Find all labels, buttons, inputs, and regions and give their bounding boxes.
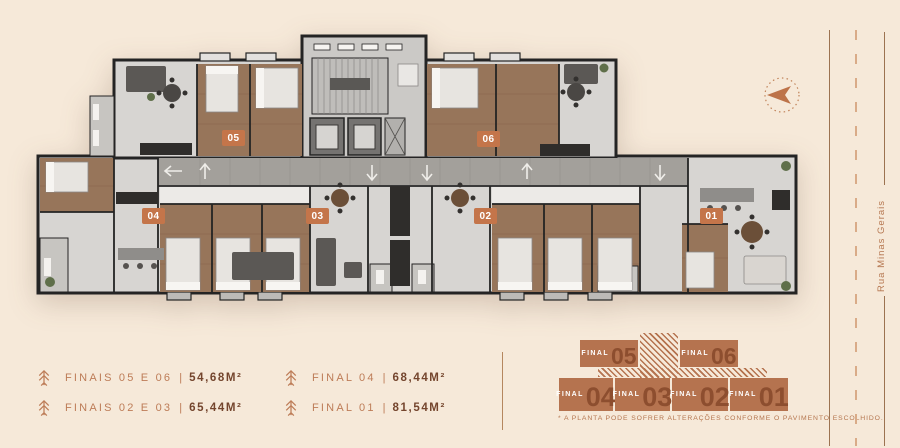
upward-arrows-icon xyxy=(36,368,52,387)
legend-area: 65,44M² xyxy=(189,402,242,414)
keymap-final-word: FINAL xyxy=(556,391,584,398)
keymap-final-word: FINAL xyxy=(581,350,609,357)
floor-plan-page: 05 06 04 03 02 01 FINAIS 05 E 06|54,68M²… xyxy=(0,0,900,448)
street-edge-line xyxy=(884,32,885,185)
keymap-unit-number: 03 xyxy=(642,385,672,409)
keymap-block-03: FINAL 03 xyxy=(615,378,670,411)
keymap-disclaimer: * A PLANTA PODE SOFRER ALTERAÇÕES CONFOR… xyxy=(558,415,838,422)
legend-divider xyxy=(502,352,503,430)
keymap-unit-number: 06 xyxy=(711,346,737,367)
legend-item-finais-05-06: FINAIS 05 E 06|54,68M² xyxy=(36,367,242,387)
legend-item-final-04: FINAL 04|68,44M² xyxy=(283,367,446,387)
street-center-dashed-line xyxy=(855,30,857,446)
keymap-corridor-hatch xyxy=(598,368,767,377)
keymap-final-word: FINAL xyxy=(729,391,757,398)
street-edge-line xyxy=(884,296,885,446)
keymap-final-word: FINAL xyxy=(613,391,641,398)
keymap-block-01: FINAL 01 xyxy=(730,378,788,411)
keymap-unit-number: 04 xyxy=(586,385,616,409)
legend-separator: | xyxy=(383,372,386,384)
legend-item-finais-02-03: FINAIS 02 E 03|65,44M² xyxy=(36,397,242,417)
upward-arrows-icon xyxy=(283,398,299,417)
unit-label-05: 05 xyxy=(222,130,245,146)
legend-label: FINAIS 05 E 06 xyxy=(65,372,172,384)
street-name-label: Rua Minas Gerais xyxy=(876,196,887,292)
keymap-final-word: FINAL xyxy=(670,391,698,398)
legend-separator: | xyxy=(179,372,182,384)
unit-label-03: 03 xyxy=(306,208,329,224)
keymap-block-04: FINAL 04 xyxy=(559,378,613,411)
legend-area: 54,68M² xyxy=(189,372,242,384)
legend-label: FINAL 01 xyxy=(312,402,376,414)
unit-label-04: 04 xyxy=(142,208,165,224)
legend-item-final-01: FINAL 01|81,54M² xyxy=(283,397,446,417)
keymap-unit-number: 01 xyxy=(759,385,789,409)
legend-label: FINAL 04 xyxy=(312,372,376,384)
upward-arrows-icon xyxy=(36,398,52,417)
legend-area: 81,54M² xyxy=(393,402,446,414)
upward-arrows-icon xyxy=(283,368,299,387)
legend-separator: | xyxy=(179,402,182,414)
street-edge-line xyxy=(829,30,830,446)
keymap-final-word: FINAL xyxy=(681,350,709,357)
keymap-unit-number: 02 xyxy=(700,385,730,409)
keymap-unit-number: 05 xyxy=(611,346,637,367)
keymap-block-02: FINAL 02 xyxy=(672,378,728,411)
legend-area: 68,44M² xyxy=(393,372,446,384)
corridor xyxy=(158,158,688,185)
keymap-block-06: FINAL 06 xyxy=(680,340,738,367)
unit-label-06: 06 xyxy=(477,131,500,147)
unit-label-02: 02 xyxy=(474,208,497,224)
legend-label: FINAIS 02 E 03 xyxy=(65,402,172,414)
keymap-block-05: FINAL 05 xyxy=(580,340,638,367)
legend-separator: | xyxy=(383,402,386,414)
direction-arrow-icon xyxy=(759,72,805,118)
unit-label-01: 01 xyxy=(700,208,723,224)
